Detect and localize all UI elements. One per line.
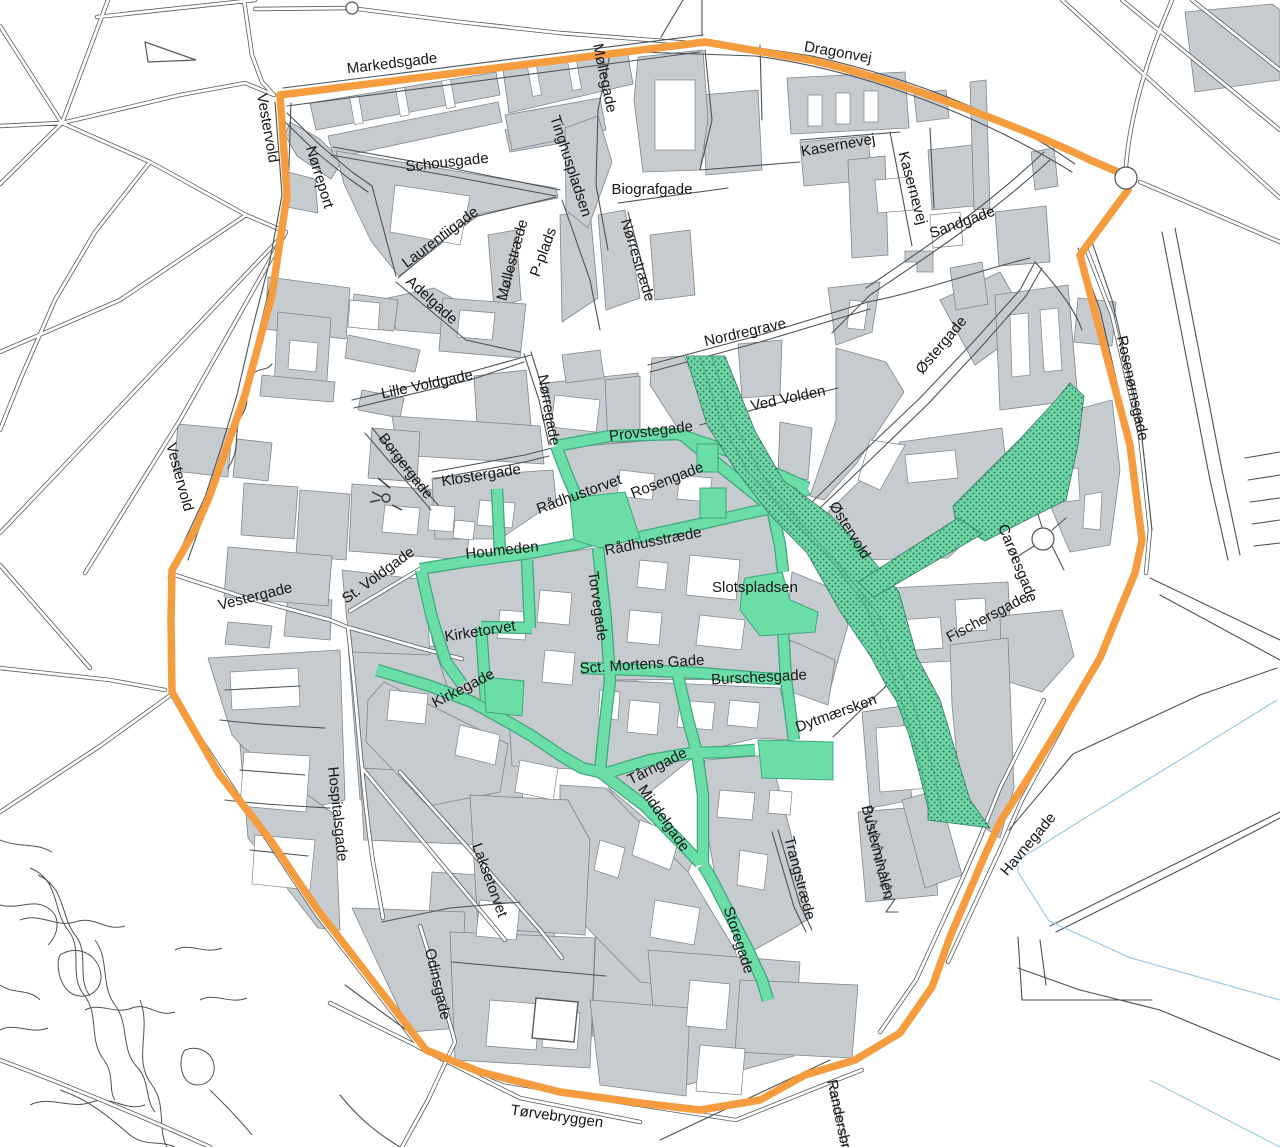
svg-text:Biografgade: Biografgade	[612, 181, 693, 198]
svg-text:Slotspladsen: Slotspladsen	[712, 579, 798, 596]
